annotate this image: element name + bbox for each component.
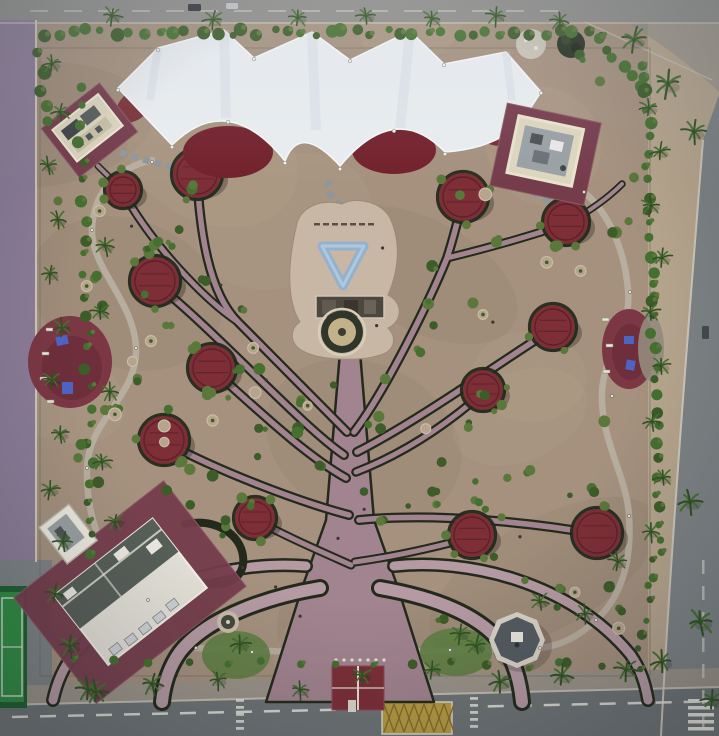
aerial-park-photo — [0, 0, 719, 736]
vignette-overlay — [0, 0, 719, 736]
park-scene-svg — [0, 0, 719, 736]
